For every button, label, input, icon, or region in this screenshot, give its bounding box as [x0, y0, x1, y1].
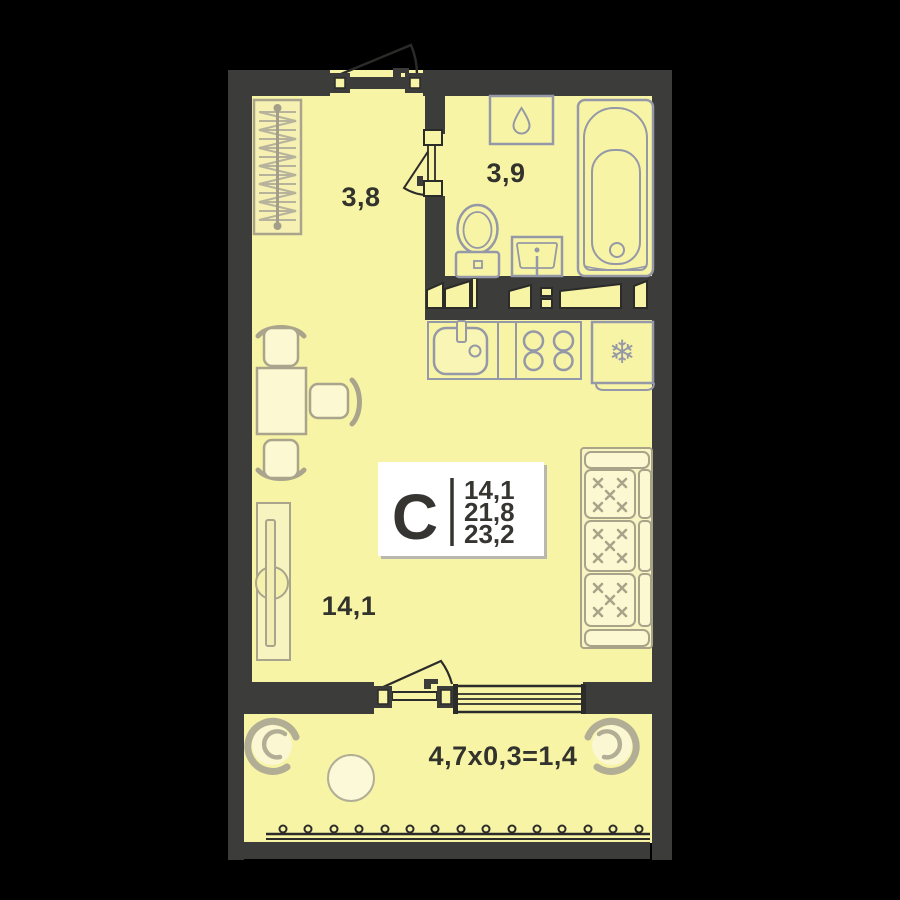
- dining-chair: [310, 384, 348, 418]
- area-value-overall: 23,2: [464, 519, 515, 549]
- vent-shaft: [634, 281, 647, 308]
- bathtub-rim: [578, 100, 653, 276]
- bathroom-door-handle: [417, 176, 423, 186]
- window: [453, 684, 586, 714]
- fridge: ❄: [592, 322, 654, 390]
- wall-bath-partition-top: [425, 96, 445, 134]
- bathtub: [578, 100, 653, 276]
- balcony-area-label: 4,7x0,3=1,4: [429, 741, 578, 771]
- balcony-door-leaf: [392, 692, 437, 700]
- wall-left-balcony: [228, 714, 244, 860]
- bathroom-sink-faucet: [535, 248, 540, 253]
- bathroom-door-leaf: [428, 145, 435, 181]
- water-heater: [490, 96, 553, 144]
- sofa-backrest: [639, 521, 651, 571]
- balcony-door-hinge-pin: [378, 690, 388, 704]
- living-area-label: 14,1: [322, 591, 377, 621]
- wall-right: [652, 70, 672, 860]
- vent-shaft: [472, 278, 477, 308]
- entrance-door: [330, 45, 425, 93]
- info-box: С 14,1 21,8 23,2: [378, 462, 547, 559]
- tv-screen: [266, 520, 275, 646]
- dining-chair: [264, 328, 298, 366]
- tv-stand: [256, 503, 290, 660]
- coat-rack: [254, 100, 301, 234]
- wall-bottom-left: [228, 682, 374, 714]
- bathroom-sink: [512, 237, 562, 276]
- sofa-armrest: [585, 630, 649, 646]
- balcony-table: [328, 755, 374, 801]
- wall-bottom-right: [583, 682, 652, 714]
- vent-shaft: [541, 288, 552, 296]
- kitchen: ❄: [428, 321, 654, 390]
- sofa: [581, 448, 652, 648]
- balcony-parapet: [242, 842, 650, 859]
- wall-left: [228, 70, 252, 714]
- entrance-door-hinge-pin: [335, 78, 345, 88]
- floor-plan-canvas: ❄: [0, 0, 900, 900]
- apartment-type-letter: С: [392, 481, 438, 553]
- water-heater-body: [490, 96, 553, 144]
- toilet-tank: [456, 252, 499, 277]
- sofa-backrest: [639, 470, 651, 518]
- dining-chair: [264, 440, 298, 478]
- floor-plan: ❄: [0, 0, 900, 900]
- wall-top-left: [228, 70, 330, 96]
- window-end-cap: [453, 684, 458, 714]
- bathroom-area-label: 3,9: [486, 158, 525, 188]
- wall-top-right: [423, 70, 672, 96]
- kitchen-sink: [434, 321, 487, 374]
- hallway-area-label: 3,8: [341, 182, 380, 212]
- toilet: [456, 205, 499, 277]
- sofa-backrest: [639, 574, 651, 626]
- wall-bath-partition-bottom: [425, 196, 445, 276]
- coat-rack-rail-end: [274, 104, 282, 112]
- coat-rack-rail-end: [274, 222, 282, 230]
- window-end-cap: [581, 684, 586, 714]
- vent-shaft: [541, 299, 552, 308]
- bathroom-door-hinge: [424, 130, 442, 145]
- bathroom-door-hinge: [424, 181, 442, 196]
- railing-posts: [280, 826, 643, 833]
- entrance-door-hinge-pin: [410, 78, 420, 88]
- kitchen-sink-faucet: [457, 321, 466, 342]
- sofa-armrest: [585, 452, 649, 468]
- dining-table: [257, 368, 306, 434]
- fridge-icon: ❄: [609, 333, 636, 371]
- balcony-door-hinge-pin: [441, 690, 451, 704]
